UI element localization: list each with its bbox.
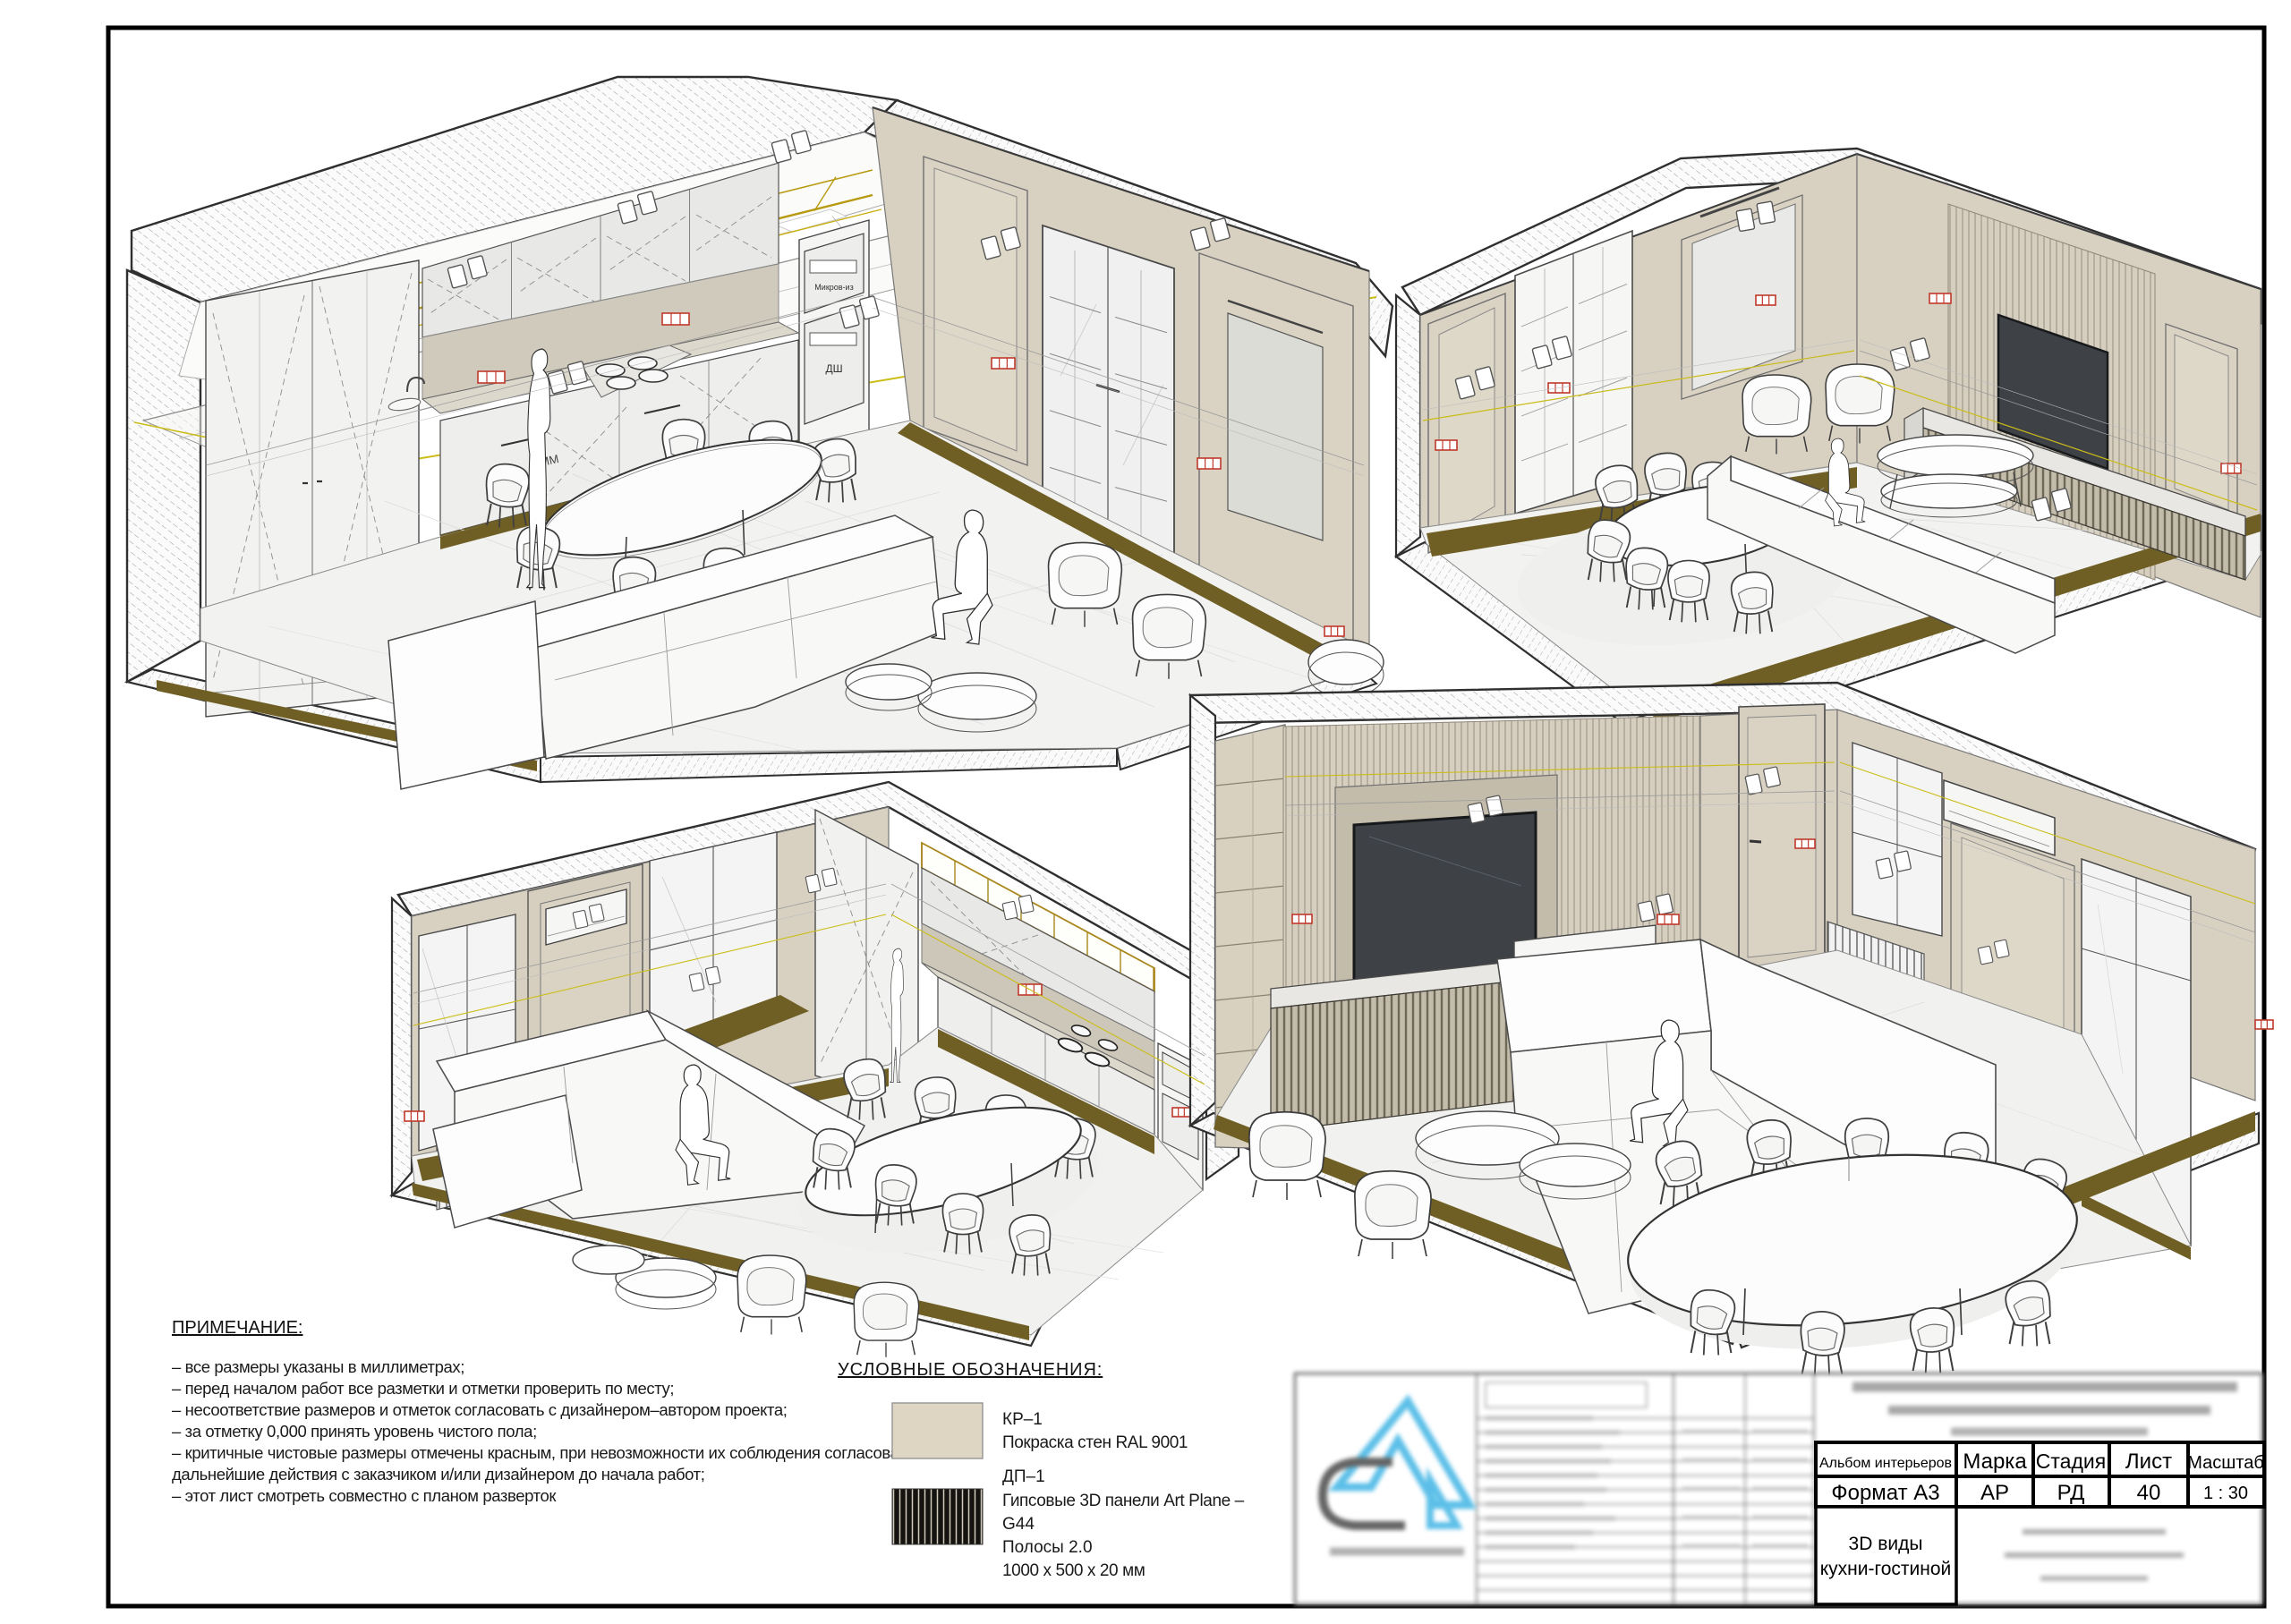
svg-text:АР: АР	[1980, 1481, 2009, 1505]
svg-text:– за отметку 0,000 принять уро: – за отметку 0,000 принять уровень чисто…	[172, 1422, 537, 1441]
svg-text:1 : 30: 1 : 30	[2203, 1484, 2248, 1503]
svg-text:Полосы 2.0: Полосы 2.0	[1002, 1538, 1093, 1557]
svg-text:Масштаб: Масштаб	[2187, 1453, 2264, 1473]
svg-text:Гипсовые 3D панели Art Plane –: Гипсовые 3D панели Art Plane –	[1002, 1492, 1245, 1510]
svg-text:– этот лист смотреть совместно: – этот лист смотреть совместно с планом …	[172, 1486, 557, 1505]
svg-text:КР–1: КР–1	[1002, 1410, 1043, 1429]
svg-text:G44: G44	[1002, 1515, 1035, 1534]
svg-text:40: 40	[2137, 1481, 2161, 1505]
svg-text:УСЛОВНЫЕ ОБОЗНАЧЕНИЯ:: УСЛОВНЫЕ ОБОЗНАЧЕНИЯ:	[838, 1360, 1103, 1380]
svg-text:– критичные чистовые размеры о: – критичные чистовые размеры отмечены кр…	[172, 1443, 914, 1462]
svg-text:Лист: Лист	[2125, 1450, 2172, 1474]
svg-text:кухни-гостиной: кухни-гостиной	[1820, 1559, 1951, 1579]
svg-text:Стадия: Стадия	[2036, 1450, 2106, 1473]
svg-text:ПРИМЕЧАНИЕ:: ПРИМЕЧАНИЕ:	[172, 1318, 302, 1338]
svg-text:Покраска стен RAL 9001: Покраска стен RAL 9001	[1002, 1433, 1188, 1452]
svg-text:Формат А3: Формат А3	[1831, 1481, 1939, 1505]
svg-text:РД: РД	[2057, 1481, 2085, 1505]
svg-text:дальнейшие действия с заказчик: дальнейшие действия с заказчиком и/или д…	[172, 1465, 704, 1484]
svg-text:ДШ: ДШ	[825, 362, 842, 375]
svg-text:Микров-из: Микров-из	[814, 283, 853, 292]
svg-text:Альбом интерьеров: Альбом интерьеров	[1819, 1456, 1952, 1471]
svg-text:– несоответствие размеров и от: – несоответствие размеров и отметок согл…	[172, 1400, 788, 1419]
svg-text:ДП–1: ДП–1	[1002, 1467, 1045, 1486]
svg-text:3D виды: 3D виды	[1849, 1534, 1923, 1554]
svg-text:– перед началом работ все разм: – перед началом работ все разметки и отм…	[172, 1379, 674, 1398]
svg-text:1000 х 500 х 20 мм: 1000 х 500 х 20 мм	[1002, 1561, 1145, 1580]
svg-text:– все размеры указаны в миллим: – все размеры указаны в миллиметрах;	[172, 1357, 464, 1376]
svg-text:Марка: Марка	[1963, 1450, 2027, 1474]
